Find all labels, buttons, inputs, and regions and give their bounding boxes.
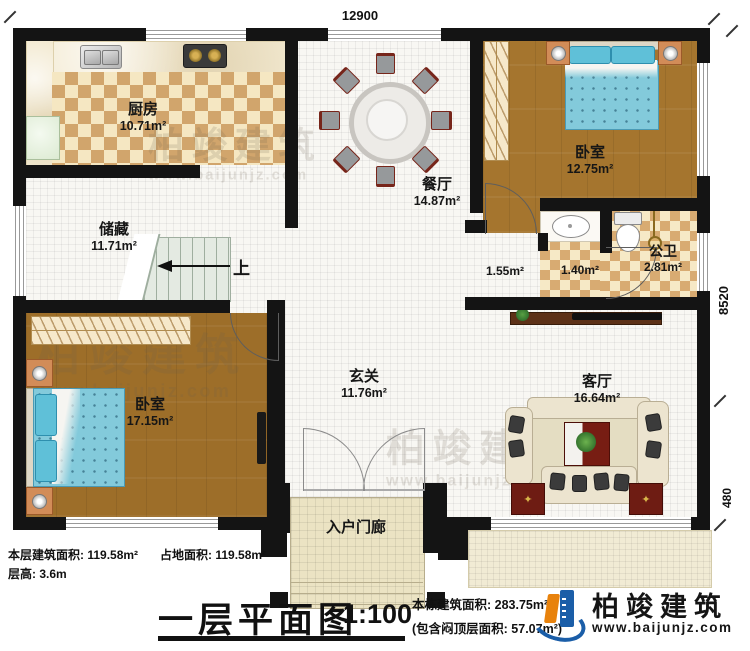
sofa-cushion <box>508 439 525 458</box>
room-name: 卧室 <box>567 144 614 162</box>
dimension-right-height: 8520 <box>716 205 731 315</box>
room-area: 2.81m² <box>644 260 682 274</box>
room-area: 12.75m² <box>567 162 614 177</box>
sofa-cushion <box>549 472 566 490</box>
wall-segment <box>465 297 710 310</box>
sofa-cushion <box>508 415 526 434</box>
lamp-icon <box>32 494 47 509</box>
logo-windows <box>562 594 566 622</box>
wardrobe-rail <box>496 42 497 160</box>
room-label-dining: 餐厅 14.87m² <box>414 176 461 208</box>
dimension-tick <box>714 519 727 532</box>
nightstand <box>26 487 53 515</box>
sofa-cushion <box>645 413 663 432</box>
pillow <box>611 46 655 64</box>
lamp-icon <box>663 46 678 61</box>
window <box>327 28 442 41</box>
nightstand <box>658 41 682 65</box>
room-label-living: 客厅 16.64m² <box>574 373 621 405</box>
title-underline <box>158 636 405 641</box>
sink-basin <box>102 50 119 65</box>
shower-pole <box>653 211 655 238</box>
plan-scale: 1:100 <box>343 599 412 630</box>
star-icon: ✦ <box>523 493 532 506</box>
sofa-cushion <box>645 440 662 459</box>
room-name: 储藏 <box>91 221 137 239</box>
room-label-foyer: 玄关 11.76m² <box>341 368 387 400</box>
wall-segment <box>13 165 200 178</box>
wall-segment <box>470 28 483 213</box>
dining-chair <box>376 53 395 74</box>
room-area: 16.64m² <box>574 391 621 406</box>
side-table: ✦ <box>629 483 663 515</box>
window <box>145 28 247 41</box>
dimension-tick <box>714 395 727 408</box>
side-table: ✦ <box>511 483 545 515</box>
window <box>697 62 710 177</box>
vanity-sink <box>552 215 590 238</box>
window <box>13 205 26 297</box>
wall-segment <box>540 198 697 211</box>
dining-chair <box>431 111 452 130</box>
kitchen-counter-top <box>26 41 287 74</box>
room-name: 入户门廊 <box>326 519 386 537</box>
plant-icon <box>576 432 596 452</box>
sofa-cushion <box>613 473 629 491</box>
dimension-tick <box>708 13 721 26</box>
nightstand <box>546 41 570 65</box>
room-area: 14.87m² <box>414 194 461 209</box>
brand-logo: 柏竣建筑 www.baijunjz.com <box>532 585 744 643</box>
floor-height-text: 层高: 3.6m <box>8 565 67 582</box>
logo-swoosh <box>529 601 590 648</box>
dining-chair <box>376 166 395 187</box>
stairs-arrow-shaft <box>172 265 230 267</box>
kitchen-sink <box>80 45 122 69</box>
pillow <box>35 440 57 482</box>
porch-pillar <box>268 483 290 533</box>
sofa-cushion <box>593 472 610 490</box>
burner <box>189 49 202 62</box>
room-area: 11.76m² <box>341 386 387 401</box>
tv-screen <box>572 313 662 320</box>
nightstand <box>26 359 53 387</box>
burner <box>208 49 221 62</box>
room-area: 11.71m² <box>91 239 137 254</box>
room-name: 卧室 <box>127 396 174 414</box>
pillow <box>35 394 57 436</box>
sink-drain <box>568 224 572 228</box>
dining-table-center <box>366 99 408 141</box>
room-name: 厨房 <box>120 101 167 119</box>
room-label-hallway: 1.55m² <box>486 264 524 278</box>
stairs-up-label: 上 <box>233 254 250 279</box>
wall-segment <box>465 220 487 233</box>
logo-blue-block <box>560 590 574 627</box>
lamp-icon <box>32 366 47 381</box>
terrace-pillar <box>438 530 468 560</box>
room-area: 1.40m² <box>561 263 599 277</box>
wall-segment <box>285 28 298 228</box>
fridge <box>26 116 60 160</box>
room-area: 10.71m² <box>120 119 167 134</box>
lamp-icon <box>551 46 566 61</box>
room-label-porch: 入户门廊 <box>326 519 386 537</box>
wardrobe <box>31 316 191 345</box>
stove <box>183 44 227 68</box>
kitchen-floor <box>52 72 285 165</box>
star-icon: ✦ <box>641 493 650 506</box>
room-label-bathroom: 公卫 2.81m² <box>644 243 682 274</box>
wardrobe <box>484 41 509 161</box>
room-label-bedroom-top: 卧室 12.75m² <box>567 144 614 176</box>
wardrobe-rail <box>32 330 190 331</box>
window <box>490 517 692 530</box>
terrace-floor <box>468 530 712 588</box>
stairs-arrow-head <box>157 260 172 272</box>
sofa-cushion <box>572 475 587 492</box>
room-area: 1.55m² <box>486 264 524 278</box>
room-area: 17.15m² <box>127 414 174 429</box>
brand-name: 柏竣建筑 <box>592 585 728 624</box>
wall-segment <box>13 300 230 313</box>
pillow <box>569 46 611 64</box>
brand-logo-icon <box>532 587 584 637</box>
building-area-text: 本栋建筑面积: 283.75m² <box>412 594 548 613</box>
room-name: 客厅 <box>574 373 621 391</box>
sink-basin <box>84 50 101 65</box>
window <box>65 517 219 530</box>
dimension-top-width: 12900 <box>320 8 400 23</box>
brand-url: www.baijunjz.com <box>592 620 733 635</box>
window <box>697 232 710 292</box>
dimension-tick <box>4 11 17 24</box>
dimension-right-porch: 480 <box>720 448 734 508</box>
room-label-kitchen: 厨房 10.71m² <box>120 101 167 133</box>
room-name: 玄关 <box>341 368 387 386</box>
wall-tv <box>257 412 266 464</box>
room-name: 公卫 <box>644 243 682 260</box>
floor-plan-page: 柏竣建筑 www.baijunjz.com 柏竣建筑 www.baijunjz.… <box>0 0 750 651</box>
room-label-bedroom-bottom: 卧室 17.15m² <box>127 396 174 428</box>
floor-area-text: 本层建筑面积: 119.58m² <box>8 546 138 563</box>
wall-segment <box>538 233 548 251</box>
dining-chair <box>319 111 340 130</box>
room-label-vanity: 1.40m² <box>561 263 599 277</box>
room-label-storage: 储藏 11.71m² <box>91 221 137 253</box>
ground-area-text: 占地面积: 119.58m² <box>160 546 266 563</box>
dimension-tick <box>726 25 739 38</box>
room-name: 餐厅 <box>414 176 461 194</box>
